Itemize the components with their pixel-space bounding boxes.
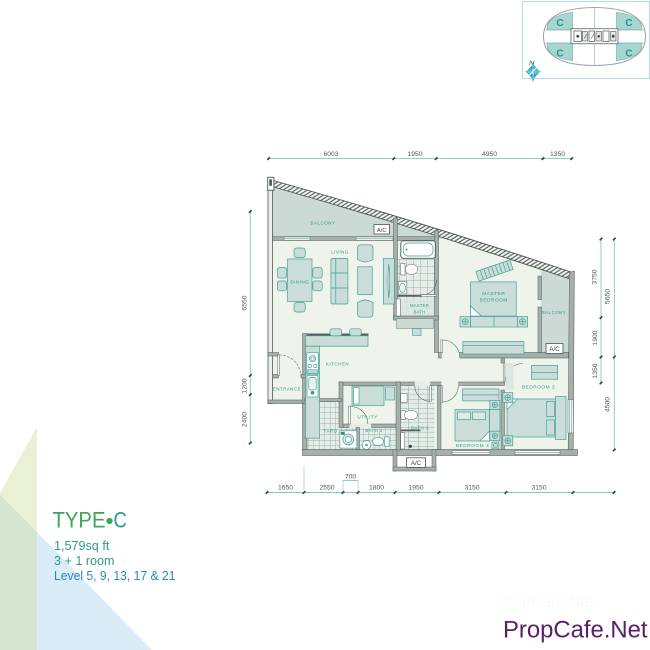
svg-text:1350: 1350 bbox=[592, 363, 599, 378]
svg-text:1200: 1200 bbox=[242, 378, 249, 393]
svg-text:C: C bbox=[625, 48, 632, 59]
svg-text:C: C bbox=[556, 18, 563, 29]
svg-text:1800: 1800 bbox=[369, 485, 384, 492]
svg-text:PropCafe.Net: PropCafe.Net bbox=[503, 617, 648, 644]
svg-text:6003: 6003 bbox=[323, 151, 338, 158]
svg-text:BEDROOM 2: BEDROOM 2 bbox=[522, 385, 555, 391]
svg-text:BALCONY: BALCONY bbox=[542, 310, 566, 315]
svg-text:3 + 1 room: 3 + 1 room bbox=[54, 554, 115, 568]
svg-text:BALCONY: BALCONY bbox=[310, 221, 335, 226]
svg-text:PropCafe.Net: PropCafe.Net bbox=[497, 594, 594, 611]
svg-text:Level 5, 9, 13, 17 & 21: Level 5, 9, 13, 17 & 21 bbox=[54, 569, 176, 583]
svg-text:MASTER: MASTER bbox=[482, 291, 505, 297]
svg-text:6550: 6550 bbox=[242, 295, 249, 310]
svg-text:1950: 1950 bbox=[408, 485, 423, 492]
svg-text:5650: 5650 bbox=[605, 289, 612, 304]
svg-text:3150: 3150 bbox=[531, 485, 546, 492]
svg-text:3750: 3750 bbox=[592, 269, 599, 284]
svg-text:2400: 2400 bbox=[242, 412, 249, 427]
svg-text:3150: 3150 bbox=[464, 485, 479, 492]
svg-text:700: 700 bbox=[345, 474, 357, 481]
svg-text:BATH 2: BATH 2 bbox=[411, 426, 429, 431]
svg-text:A/C: A/C bbox=[411, 460, 422, 467]
svg-text:C: C bbox=[625, 18, 632, 29]
svg-text:MASTER: MASTER bbox=[410, 303, 429, 308]
svg-text:1900: 1900 bbox=[592, 330, 599, 345]
svg-text:2550: 2550 bbox=[319, 485, 334, 492]
svg-text:BEDROOM: BEDROOM bbox=[480, 298, 508, 304]
svg-text:C: C bbox=[114, 508, 128, 533]
svg-text:BATH 3: BATH 3 bbox=[365, 428, 383, 433]
svg-text:KITCHEN: KITCHEN bbox=[326, 362, 349, 367]
svg-text:BATH: BATH bbox=[414, 310, 426, 315]
svg-text:A/C: A/C bbox=[549, 346, 560, 353]
svg-text:UTILITY: UTILITY bbox=[357, 415, 377, 420]
svg-text:1650: 1650 bbox=[278, 485, 293, 492]
svg-text:ENTRANCE: ENTRANCE bbox=[273, 387, 301, 392]
svg-text:TYPE: TYPE bbox=[53, 508, 106, 533]
svg-text:1950: 1950 bbox=[407, 151, 422, 158]
svg-text:DINING: DINING bbox=[290, 280, 309, 285]
svg-text:BEDROOM 3: BEDROOM 3 bbox=[456, 443, 489, 449]
svg-text:LIVING: LIVING bbox=[331, 250, 349, 255]
svg-text:1350: 1350 bbox=[550, 151, 565, 158]
svg-text:C: C bbox=[556, 48, 563, 59]
svg-text:1,579sq ft: 1,579sq ft bbox=[54, 539, 110, 553]
svg-text:4500: 4500 bbox=[605, 397, 612, 412]
svg-text:YARD: YARD bbox=[323, 429, 337, 434]
svg-text:A/C: A/C bbox=[377, 228, 387, 234]
svg-text:4950: 4950 bbox=[482, 151, 497, 158]
